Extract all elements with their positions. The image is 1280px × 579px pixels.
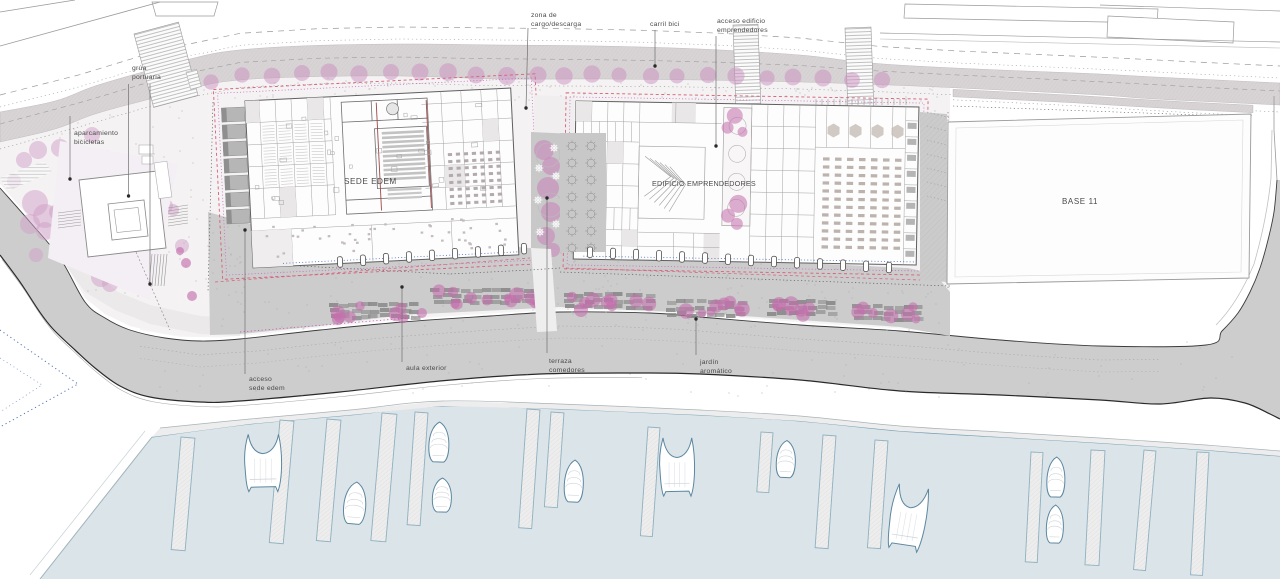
svg-text:zona de: zona de <box>531 12 557 19</box>
svg-text:bicicletas: bicicletas <box>74 139 105 146</box>
svg-text:cargo/descarga: cargo/descarga <box>531 21 581 28</box>
svg-text:aula exterior: aula exterior <box>406 365 447 372</box>
svg-text:acceso edificio: acceso edificio <box>717 18 765 25</box>
svg-text:jardín: jardín <box>699 359 719 366</box>
svg-text:portuaria: portuaria <box>132 74 161 81</box>
svg-text:sede edem: sede edem <box>249 385 285 392</box>
svg-text:SEDE EDEM: SEDE EDEM <box>344 177 397 186</box>
svg-text:terraza: terraza <box>549 358 572 365</box>
svg-text:carril bici: carril bici <box>650 21 680 28</box>
svg-text:emprendedores: emprendedores <box>717 27 768 34</box>
svg-text:BASE 11: BASE 11 <box>1062 197 1098 206</box>
svg-text:comedores: comedores <box>549 367 585 374</box>
svg-text:EDIFICIO EMPRENDEDORES: EDIFICIO EMPRENDEDORES <box>652 179 756 188</box>
svg-text:aparcamiento: aparcamiento <box>74 130 118 137</box>
svg-text:aromático: aromático <box>700 368 732 375</box>
svg-text:grúa: grúa <box>132 65 147 72</box>
svg-text:acceso: acceso <box>249 376 272 383</box>
